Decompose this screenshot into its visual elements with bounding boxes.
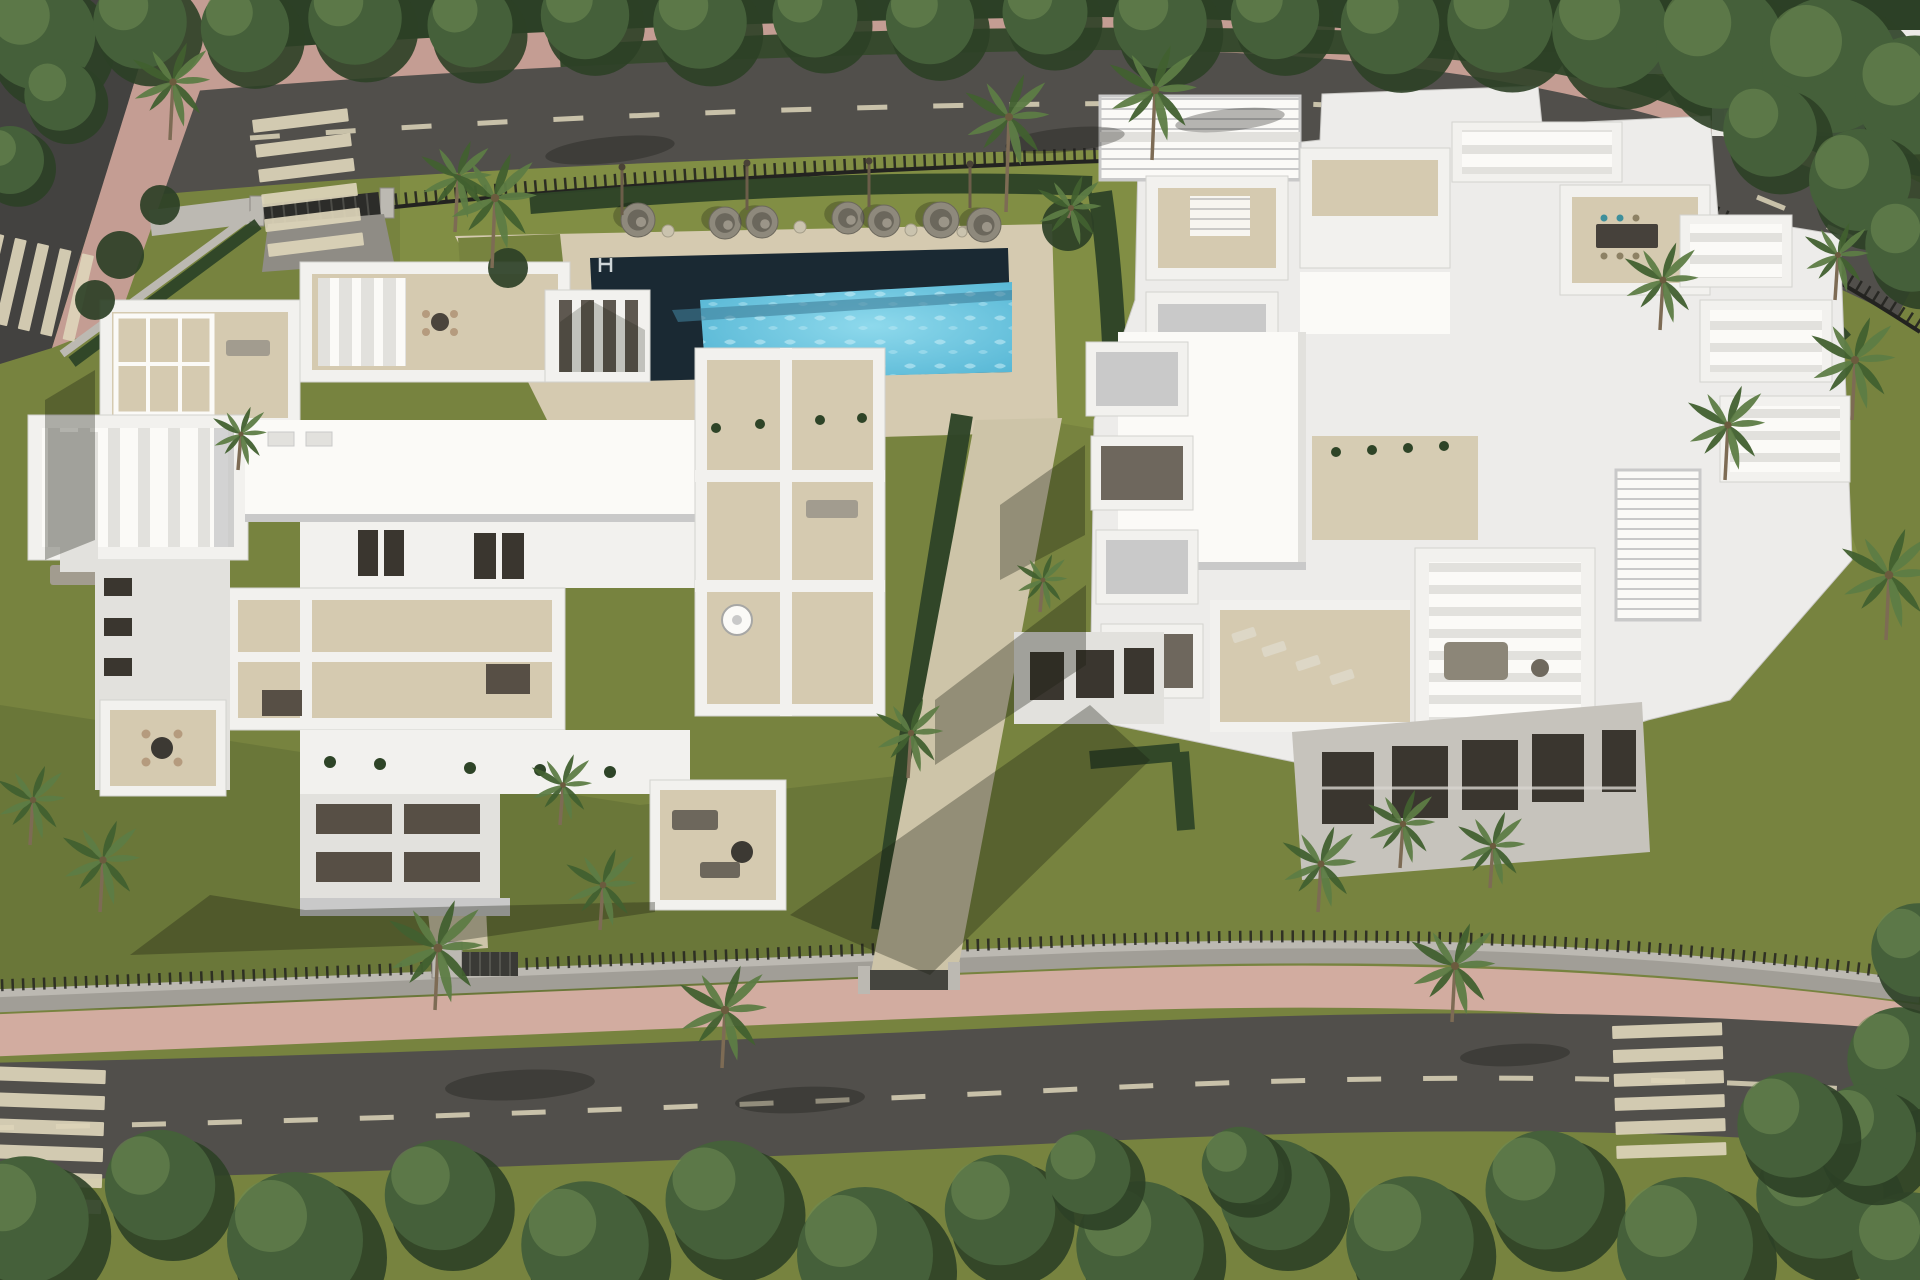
- aerial-render: [0, 0, 1920, 1280]
- side-table: [905, 224, 917, 236]
- bush: [140, 185, 180, 225]
- side-table: [957, 227, 967, 237]
- gate-bottom-center: [866, 970, 952, 990]
- side-table: [662, 225, 674, 237]
- side-table: [794, 221, 806, 233]
- bush: [96, 231, 144, 279]
- render-canvas: [0, 0, 1920, 1280]
- bush: [75, 280, 115, 320]
